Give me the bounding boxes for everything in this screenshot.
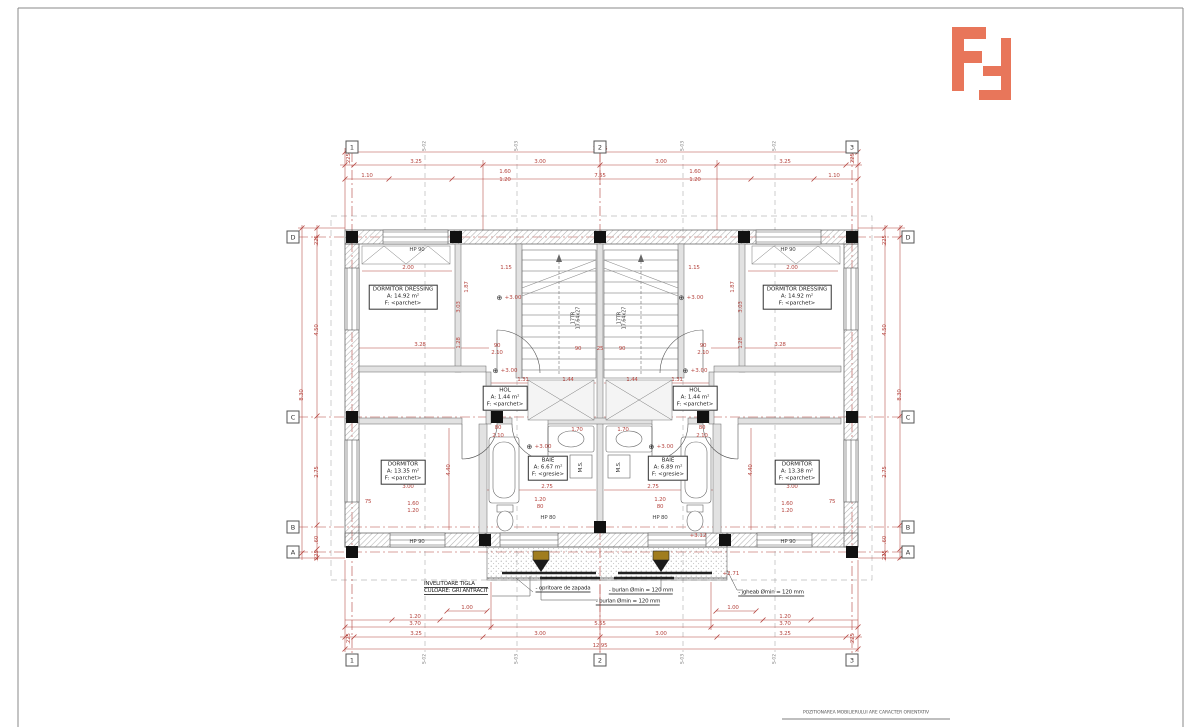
level-symbol-icon: ⊕ [649,443,657,451]
dim-label-vertical: .225 [882,235,888,246]
dim-label-vertical: 4.50 [314,324,320,335]
dim-label: 1.20 [781,508,792,514]
axis-bubble-D-left: D [287,231,300,244]
room-label-hol-right: HOLA: 1.44 m²F: <parchet> [673,386,718,411]
note-downspout-2: - burlan Ømin = 120 mm [596,599,660,606]
dim-label: 3.00 [786,484,797,490]
level-symbol-icon: ⊕ [527,443,535,451]
elevation-note: +2.71 [723,571,740,577]
dim-label: 1.31 [517,377,528,383]
dim-label: 90 [494,343,501,349]
dim-label: 2.10 [491,350,502,356]
dim-label-vertical: 1.87 [464,281,470,292]
dim-label: 1.20 [409,614,420,620]
dim-label-vertical: 3.03 [738,301,744,312]
dim-label: 2.00 [786,265,797,271]
axis-bubble-2-top: 2 [594,141,607,154]
dim-label: 1.00 [461,605,472,611]
dim-label-vertical: 8.30 [299,389,305,400]
dim-label: 3.25 [779,159,790,165]
dim-label: 2.00 [402,265,413,271]
room-label-dormitor-dressing-right: DORMITOR DRESSINGA: 14.92 m²F: <parchet> [763,285,832,310]
dim-label: 1.60 [689,169,700,175]
dim-label-vertical: .225 [882,550,888,561]
room-label-baie-right: BAIEA: 6.89 m²F: <gresie> [648,456,688,481]
axis-bubble-A-right: A [902,546,915,559]
dim-label-vertical: .60 [314,536,320,544]
axis-bubble-B-right: B [902,521,915,534]
dim-label-vertical: 2.75 [314,466,320,477]
axis-bubble-3-bottom: 3 [846,654,859,667]
section-marker-S-02: S-02 [773,141,778,151]
section-marker-S-03: S-03 [515,654,520,664]
elevation-note: +3.12 [690,533,707,539]
window-height-label: HP 80 [540,515,555,521]
dim-label: 3.00 [534,159,545,165]
dim-label-vertical: .225 [850,153,856,164]
level-marker: ⊕ +3.00 [527,443,552,451]
note-roof-covering: INVELITOARE TIGLACULOARE: GRI ANTRACIT [424,581,488,595]
dim-label-vertical: 4.40 [446,464,452,475]
dim-label-vertical: .225 [346,153,352,164]
axis-bubble-1-bottom: 1 [346,654,359,667]
dim-label: 2.10 [492,433,503,439]
axis-bubble-1-top: 1 [346,141,359,154]
dim-label-vertical: .60 [882,536,888,544]
dim-label: 3.70 [779,621,790,627]
dim-label: 1.15 [500,265,511,271]
dim-label: 25 [597,346,604,352]
dim-label-vertical: 4.40 [748,464,754,475]
dim-label: 3.28 [414,342,425,348]
dim-label: 90 [700,343,707,349]
dim-label: 1.20 [499,177,510,183]
dim-label: 80 [495,425,502,431]
dim-label: 1.00 [727,605,738,611]
dim-label: 1.10 [828,173,839,179]
axis-bubble-A-left: A [287,546,300,559]
dim-label: 3.00 [655,631,666,637]
stair-label-stair-left: 17TR17.64x27 [572,307,583,330]
dim-label-vertical: .225 [346,633,352,644]
dim-label: 80 [537,504,544,510]
dim-label-vertical: 1.28 [738,337,744,348]
washing-machine-label: M.S. [578,462,584,473]
dim-label-vertical: 4.50 [882,324,888,335]
dim-label: 7.55 [594,173,605,179]
ff-logo [948,25,1018,103]
dim-label: 1.20 [654,497,665,503]
dim-label: 2.75 [647,484,658,490]
section-marker-S-03: S-03 [681,654,686,664]
dim-label: 3.25 [410,159,421,165]
dim-label: 3.00 [655,159,666,165]
level-symbol-icon: ⊕ [683,367,691,375]
dim-label: 3.70 [409,621,420,627]
dim-label: 1.10 [361,173,372,179]
dim-label: 1.44 [562,377,573,383]
window-height-label: HP 90 [780,247,795,253]
room-label-hol-left: HOLA: 1.44 m²F: <parchet> [483,386,528,411]
dim-label: 90 [619,346,626,352]
section-marker-S-03: S-03 [515,141,520,151]
level-marker: ⊕ +3.00 [683,367,708,375]
window-height-label: HP 80 [652,515,667,521]
dim-label: 2.75 [541,484,552,490]
level-symbol-icon: ⊕ [493,367,501,375]
dim-label-vertical: 8.30 [897,389,903,400]
dim-label: 2.10 [696,433,707,439]
section-marker-S-02: S-02 [423,141,428,151]
axis-bubble-C-left: C [287,411,300,424]
window-height-label: HP 90 [409,247,424,253]
drawing-sheet: 12.953.253.003.003.251.101.601.207.551.6… [0,0,1200,727]
dim-label: 5.55 [594,621,605,627]
dim-label: 1.60 [407,501,418,507]
ff-logo-glyphs [952,27,1012,101]
labels-layer: 12.953.253.003.003.251.101.601.207.551.6… [0,0,1200,727]
section-marker-S-02: S-02 [423,654,428,664]
dim-label-vertical: .225 [314,235,320,246]
dim-label: 1.31 [671,377,682,383]
footer-note: POZITIONAREA MOBILIERULUI ARE CARACTER O… [803,711,929,716]
level-marker: ⊕ +3.00 [497,294,522,302]
dim-label: 1.70 [617,427,628,433]
axis-bubble-3-top: 3 [846,141,859,154]
dim-label: 3.25 [779,631,790,637]
dim-label: 1.20 [534,497,545,503]
stair-label-stair-right: 17TR17.64x27 [618,307,629,330]
level-marker: ⊕ +3.00 [493,367,518,375]
dim-label: 3.00 [534,631,545,637]
dim-label-vertical: 1.28 [456,337,462,348]
dim-label: 1.60 [781,501,792,507]
dim-label-vertical: 2.75 [882,466,888,477]
level-symbol-icon: ⊕ [679,294,687,302]
room-label-dormitor-dressing-left: DORMITOR DRESSINGA: 14.92 m²F: <parchet> [369,285,438,310]
axis-bubble-2-bottom: 2 [594,654,607,667]
section-marker-S-02: S-02 [773,654,778,664]
dim-label-vertical: 3.03 [456,301,462,312]
dim-label: 3.25 [410,631,421,637]
dim-label: 1.20 [689,177,700,183]
axis-bubble-C-right: C [902,411,915,424]
note-gutter: - jgheab Ømin = 120 mm [738,590,804,597]
dim-label: 3.00 [402,484,413,490]
note-downspout-1: - burlan Ømin = 120 mm [609,588,673,595]
dim-label: 1.60 [499,169,510,175]
dim-label-vertical: .225 [314,550,320,561]
dim-label: 80 [699,425,706,431]
axis-bubble-B-left: B [287,521,300,534]
note-snow-guards: - opritoare de zapada [536,586,591,593]
axis-bubble-D-right: D [902,231,915,244]
level-marker: ⊕ +3.00 [649,443,674,451]
dim-label: 75 [829,499,836,505]
window-height-label: HP 90 [409,539,424,545]
level-marker: ⊕ +3.00 [679,294,704,302]
dim-label: 1.44 [626,377,637,383]
room-label-baie-left: BAIEA: 6.67 m²F: <gresie> [528,456,568,481]
room-label-dormitor-right: DORMITORA: 13.38 m²F: <parchet> [775,460,820,485]
section-marker-S-03: S-03 [681,141,686,151]
dim-label: 3.28 [774,342,785,348]
dim-label: 1.15 [688,265,699,271]
dim-label-vertical: 1.87 [730,281,736,292]
dim-label: 90 [575,346,582,352]
washing-machine-label: M.S. [616,462,622,473]
dim-label: 75 [365,499,372,505]
dim-label: 1.20 [407,508,418,514]
dim-label: 1.70 [571,427,582,433]
room-label-dormitor-left: DORMITORA: 13.35 m²F: <parchet> [381,460,426,485]
level-symbol-icon: ⊕ [497,294,505,302]
dim-label: 12.95 [593,643,608,649]
dim-label: 1.20 [779,614,790,620]
window-height-label: HP 90 [780,539,795,545]
dim-label: 80 [657,504,664,510]
dim-label-vertical: .225 [850,633,856,644]
dim-label: 2.10 [697,350,708,356]
